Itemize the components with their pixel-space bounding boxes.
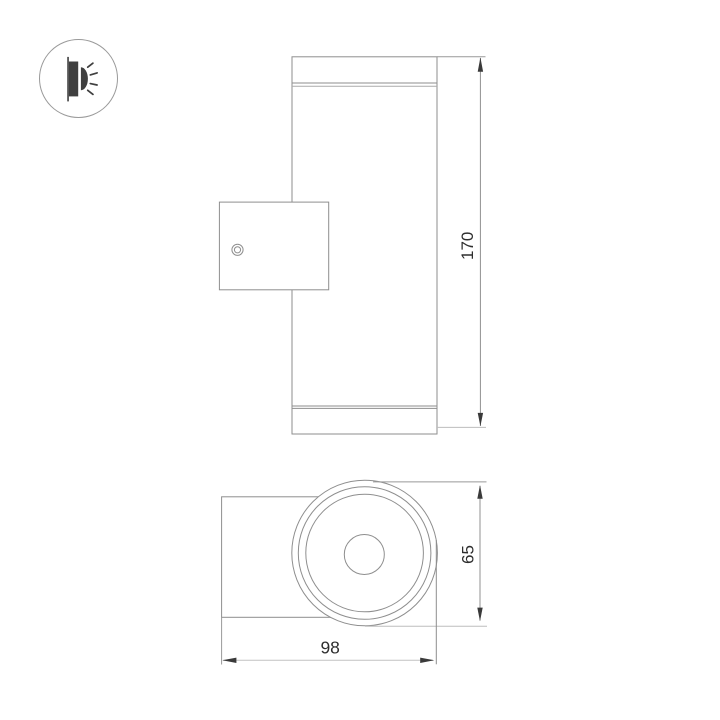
svg-text:98: 98 [320,637,339,657]
svg-text:170: 170 [458,232,477,260]
svg-text:65: 65 [459,545,478,564]
